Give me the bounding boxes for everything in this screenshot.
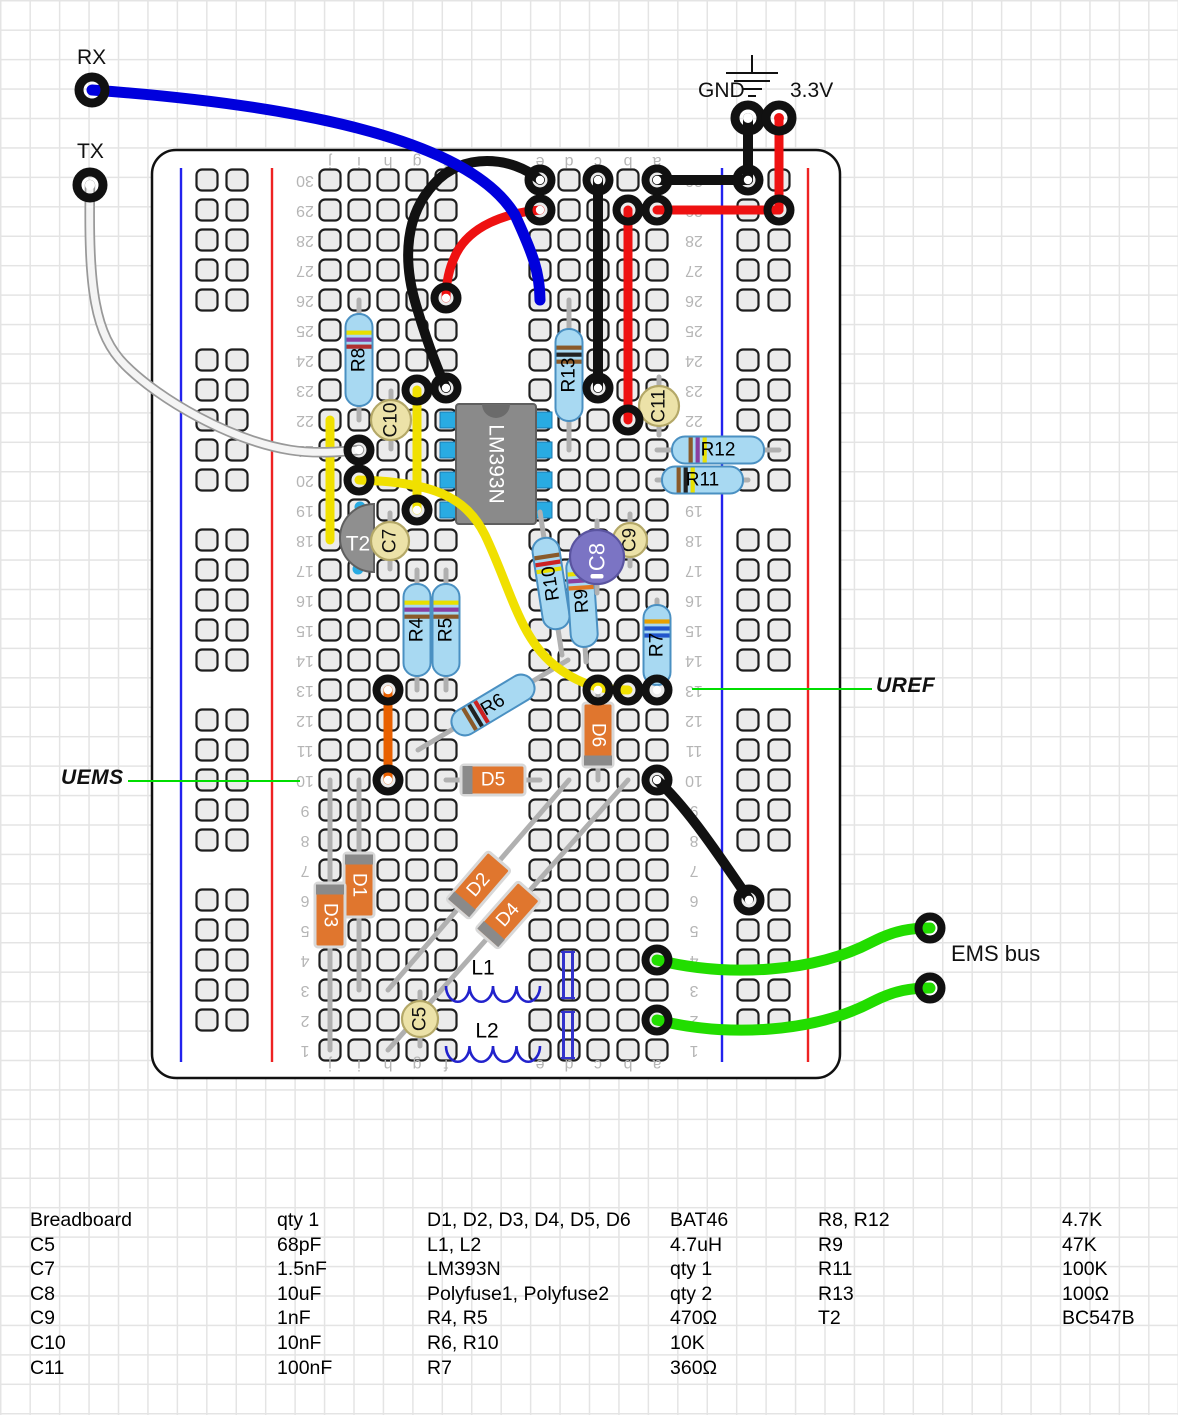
breadboard-hole (407, 350, 428, 371)
pad-center (653, 776, 661, 784)
breadboard-hole (769, 710, 790, 731)
breadboard-hole (588, 410, 609, 431)
breadboard-hole (378, 170, 399, 191)
breadboard-hole (647, 530, 668, 551)
breadboard-hole (647, 830, 668, 851)
breadboard-hole (647, 890, 668, 911)
breadboard-hole (618, 950, 639, 971)
breadboard-hole (738, 560, 759, 581)
breadboard-hole (197, 650, 218, 671)
breadboard-hole (738, 380, 759, 401)
component-label: C8 (585, 543, 610, 571)
board-printed-label: 1 (300, 1042, 309, 1059)
breadboard-hole (320, 560, 341, 581)
connection-pad[interactable] (77, 172, 103, 198)
breadboard-hole (436, 740, 457, 761)
breadboard-hole (559, 920, 580, 941)
legend-entry: qty 1 (277, 1208, 332, 1233)
resistor-band (557, 346, 582, 350)
breadboard-hole (227, 740, 248, 761)
breadboard-hole (559, 710, 580, 731)
breadboard-hole (530, 350, 551, 371)
breadboard-hole (436, 950, 457, 971)
breadboard-hole (769, 560, 790, 581)
connection-pad[interactable] (348, 469, 371, 492)
breadboard-hole (618, 1010, 639, 1031)
connection-pad[interactable] (617, 199, 640, 222)
resistor-band (434, 608, 459, 612)
breadboard-hole (227, 560, 248, 581)
legend-entry: C8 (30, 1282, 132, 1307)
board-printed-label: 6 (689, 892, 698, 909)
legend-entry: qty 1 (670, 1257, 728, 1282)
board-printed-label: 18 (685, 532, 703, 549)
board-printed-label: 13 (685, 682, 703, 699)
board-printed-label: 14 (685, 652, 703, 669)
breadboard-hole (618, 860, 639, 881)
board-printed-label: 27 (685, 262, 703, 279)
breadboard-hole (197, 710, 218, 731)
breadboard-hole (227, 380, 248, 401)
breadboard-hole (197, 740, 218, 761)
breadboard-hole (320, 620, 341, 641)
component-label: R9 (571, 588, 594, 614)
component-r8[interactable]: R8 (346, 300, 373, 420)
board-printed-label: 15 (685, 622, 703, 639)
legend-entry: C9 (30, 1306, 132, 1331)
breadboard-hole (197, 470, 218, 491)
breadboard-hole (769, 620, 790, 641)
connection-pad[interactable] (587, 169, 610, 192)
breadboard-hole (407, 920, 428, 941)
connection-pad[interactable] (646, 769, 669, 792)
connection-pad[interactable] (348, 439, 371, 462)
breadboard-hole (530, 920, 551, 941)
component-label: R13 (559, 358, 580, 393)
connection-pad[interactable] (919, 917, 942, 940)
connection-pad[interactable] (529, 199, 552, 222)
board-printed-label: 24 (296, 352, 314, 369)
breadboard-hole (227, 200, 248, 221)
legend-entry: C11 (30, 1356, 132, 1381)
legend-entry: T2 (818, 1306, 890, 1331)
breadboard-hole (618, 620, 639, 641)
legend-entry: 1.5nF (277, 1257, 332, 1282)
board-printed-label: d (565, 153, 574, 170)
pad-center (743, 113, 753, 123)
breadboard-hole (618, 590, 639, 611)
breadboard-hole (320, 590, 341, 611)
resistor-band (347, 331, 372, 335)
tx-label: TX (77, 140, 104, 164)
connection-pad[interactable] (587, 377, 610, 400)
breadboard-hole (738, 710, 759, 731)
pad-center (355, 446, 363, 454)
breadboard-hole (227, 620, 248, 641)
component-label: L1 (471, 957, 494, 980)
breadboard-hole (618, 440, 639, 461)
component-d5[interactable]: D5 (446, 765, 540, 795)
breadboard-hole (197, 200, 218, 221)
legend-column-3: D1, D2, D3, D4, D5, D6L1, L2LM393NPolyfu… (427, 1208, 631, 1380)
breadboard-hole (530, 320, 551, 341)
connection-pad[interactable] (646, 679, 669, 702)
breadboard-hole (588, 980, 609, 1001)
breadboard-hole (559, 470, 580, 491)
breadboard-hole (436, 200, 457, 221)
breadboard-hole (378, 830, 399, 851)
board-printed-label: 22 (685, 412, 703, 429)
breadboard-hole (227, 650, 248, 671)
board-printed-label: 22 (296, 412, 314, 429)
breadboard-hole (738, 770, 759, 791)
breadboard-hole (407, 980, 428, 1001)
connection-pad[interactable] (587, 679, 610, 702)
breadboard-hole (378, 800, 399, 821)
breadboard-hole (436, 230, 457, 251)
legend-entry: C5 (30, 1233, 132, 1258)
legend-entry: 360Ω (670, 1356, 728, 1381)
legend-entry: Polyfuse1, Polyfuse2 (427, 1282, 631, 1307)
board-printed-label: g (413, 153, 422, 170)
component-r12[interactable]: R12 (657, 437, 779, 464)
resistor-band (645, 619, 670, 623)
component-label: R5 (436, 618, 457, 642)
breadboard-hole (436, 320, 457, 341)
breadboard-hole (227, 260, 248, 281)
breadboard-hole (738, 740, 759, 761)
legend-entry: 10nF (277, 1331, 332, 1356)
breadboard-hole (320, 710, 341, 731)
legend-entry: C10 (30, 1331, 132, 1356)
breadboard-hole (320, 380, 341, 401)
breadboard-hole (588, 860, 609, 881)
pad-center (653, 956, 661, 964)
breadboard-hole (349, 170, 370, 191)
breadboard-hole (378, 620, 399, 641)
connection-pad[interactable] (79, 77, 105, 103)
breadboard-hole (738, 230, 759, 251)
breadboard-hole (588, 1010, 609, 1031)
component-label: R8 (349, 348, 370, 372)
pad-center (624, 686, 632, 694)
breadboard-hole (559, 230, 580, 251)
breadboard-hole (227, 920, 248, 941)
board-printed-label: 23 (685, 382, 703, 399)
board-printed-label: 19 (685, 502, 703, 519)
breadboard-hole (647, 710, 668, 731)
component-label: D3 (320, 903, 341, 927)
breadboard-hole (769, 650, 790, 671)
breadboard-hole (227, 290, 248, 311)
connection-pad[interactable] (406, 499, 429, 522)
connection-pad[interactable] (646, 169, 669, 192)
diode-cathode-band (463, 766, 473, 794)
board-printed-label: 3 (689, 982, 698, 999)
breadboard-hole (647, 740, 668, 761)
connection-pad[interactable] (646, 1009, 669, 1032)
diode-cathode-band (345, 855, 373, 865)
breadboard-hole (618, 920, 639, 941)
breadboard-hole (769, 530, 790, 551)
breadboard-hole (378, 590, 399, 611)
board-printed-label: 12 (296, 712, 314, 729)
board-printed-label: 18 (296, 532, 314, 549)
legend-entry: 68pF (277, 1233, 332, 1258)
connection-pad[interactable] (919, 977, 942, 1000)
legend-entry: R8, R12 (818, 1208, 890, 1233)
board-printed-label: c (594, 1056, 602, 1073)
legend-column-5: R8, R12R9R11R13T2 (818, 1208, 890, 1331)
breadboard-hole (588, 470, 609, 491)
pad-center (745, 896, 753, 904)
component-r11[interactable]: R11 (657, 467, 748, 494)
connection-pad[interactable] (435, 287, 458, 310)
connection-pad[interactable] (377, 679, 400, 702)
board-printed-label: 9 (300, 802, 309, 819)
pad-center (775, 206, 783, 214)
breadboard-hole (320, 740, 341, 761)
breadboard-hole (227, 800, 248, 821)
legend-entry: R6, R10 (427, 1331, 631, 1356)
breadboard-hole (769, 350, 790, 371)
legend-column-2: qty 168pF1.5nF10uF1nF10nF100nF (277, 1208, 332, 1380)
legend-entry: 10uF (277, 1282, 332, 1307)
breadboard-hole (197, 920, 218, 941)
legend-entry: 100K (1062, 1257, 1135, 1282)
breadboard-hole (738, 920, 759, 941)
breadboard-hole (227, 590, 248, 611)
breadboard-hole (349, 620, 370, 641)
diode-cathode-band (584, 756, 612, 766)
board-printed-label: 26 (685, 292, 703, 309)
legend-entry: 4.7K (1062, 1208, 1135, 1233)
breadboard-hole (588, 440, 609, 461)
rx-label: RX (77, 46, 106, 70)
pad-center (653, 176, 661, 184)
resistor-band (557, 353, 582, 357)
board-printed-label: 16 (685, 592, 703, 609)
breadboard-hole (349, 680, 370, 701)
breadboard-hole (349, 260, 370, 281)
breadboard-hole (197, 830, 218, 851)
connection-pad[interactable] (737, 169, 760, 192)
breadboard-hole (769, 470, 790, 491)
connection-pad[interactable] (766, 105, 792, 131)
breadboard-hole (197, 290, 218, 311)
connection-pad[interactable] (768, 199, 791, 222)
board-printed-label: i (357, 1056, 361, 1073)
breadboard-hole (618, 470, 639, 491)
breadboard-hole (197, 350, 218, 371)
breadboard-hole (647, 350, 668, 371)
breadboard-hole (530, 740, 551, 761)
component-label: LM393N (485, 424, 508, 503)
breadboard-hole (320, 230, 341, 251)
connection-pad[interactable] (617, 679, 640, 702)
breadboard-hole (559, 200, 580, 221)
breadboard-hole (349, 650, 370, 671)
board-printed-label: 27 (296, 262, 314, 279)
connection-pad[interactable] (529, 169, 552, 192)
board-printed-label: 7 (300, 862, 309, 879)
breadboard-hole (320, 350, 341, 371)
breadboard-hole (647, 980, 668, 1001)
breadboard-hole (378, 920, 399, 941)
board-printed-label: 5 (689, 922, 698, 939)
legend-entry: L1, L2 (427, 1233, 631, 1258)
legend-entry: 4.7uH (670, 1233, 728, 1258)
breadboard-hole (197, 230, 218, 251)
breadboard-hole (378, 380, 399, 401)
breadboard-hole (647, 920, 668, 941)
board-printed-label: 11 (297, 742, 314, 759)
pad-center (594, 686, 602, 694)
pad-center (594, 176, 602, 184)
breadboard-hole (227, 350, 248, 371)
breadboard-hole (320, 260, 341, 281)
breadboard-page: { "ports": { "rx": {"label":"RX"}, "tx":… (0, 0, 1178, 1415)
breadboard-hole (227, 950, 248, 971)
board-printed-label: 26 (296, 292, 314, 309)
resistor-band (645, 626, 670, 630)
pad-center (653, 686, 661, 694)
breadboard-hole (769, 590, 790, 611)
legend-entry: 100nF (277, 1356, 332, 1381)
breadboard-hole (530, 380, 551, 401)
connection-pad[interactable] (406, 379, 429, 402)
resistor-band (347, 338, 372, 342)
breadboard-hole (436, 530, 457, 551)
board-printed-label: j (328, 153, 333, 170)
gnd-label: GND (698, 79, 745, 103)
breadboard-hole (647, 560, 668, 581)
pad-center (536, 176, 544, 184)
ems-bus-label: EMS bus (951, 941, 1040, 967)
board-printed-label: 28 (296, 232, 314, 249)
breadboard-hole (738, 980, 759, 1001)
pad-center (744, 176, 752, 184)
breadboard-hole (320, 680, 341, 701)
breadboard-hole (647, 860, 668, 881)
breadboard-hole (647, 230, 668, 251)
connection-pad[interactable] (735, 105, 761, 131)
component-label: D1 (349, 873, 370, 897)
breadboard-hole (530, 1010, 551, 1031)
connection-pad[interactable] (435, 377, 458, 400)
board-printed-label: 16 (296, 592, 314, 609)
breadboard-hole (738, 800, 759, 821)
legend-entry: qty 2 (670, 1282, 728, 1307)
connection-pad[interactable] (617, 409, 640, 432)
breadboard-hole (769, 260, 790, 281)
breadboard-hole (618, 980, 639, 1001)
breadboard-hole (769, 230, 790, 251)
pad-center (774, 113, 784, 123)
breadboard-hole (197, 560, 218, 581)
breadboard-hole (320, 170, 341, 191)
breadboard-hole (436, 830, 457, 851)
breadboard-hole (769, 890, 790, 911)
breadboard-hole (197, 980, 218, 1001)
breadboard-hole (559, 860, 580, 881)
board-printed-label: g (413, 1056, 422, 1073)
breadboard-diagram: 1122334455667788991010111112121313141415… (0, 0, 1178, 1415)
pad-center (85, 180, 95, 190)
legend-entry: R11 (818, 1257, 890, 1282)
legend-entry: 100Ω (1062, 1282, 1135, 1307)
component-label: R7 (647, 633, 668, 657)
legend-column-1: BreadboardC5C7C8C9C10C11 (30, 1208, 132, 1380)
board-printed-label: 4 (300, 952, 309, 969)
board-printed-label: b (623, 1056, 632, 1073)
legend-entry: C7 (30, 1257, 132, 1282)
breadboard-hole (530, 950, 551, 971)
component-label: C10 (381, 403, 402, 438)
breadboard-hole (349, 200, 370, 221)
breadboard-hole (769, 290, 790, 311)
breadboard-hole (530, 830, 551, 851)
connection-pad[interactable] (646, 199, 669, 222)
pad-center (355, 476, 363, 484)
legend-column-6: 4.7K47K100K100ΩBC547B (1062, 1208, 1135, 1331)
component-r5[interactable]: R5 (433, 570, 460, 690)
board-printed-label: h (384, 1056, 393, 1073)
breadboard-hole (227, 170, 248, 191)
breadboard-hole (618, 650, 639, 671)
breadboard-hole (320, 320, 341, 341)
connection-pad[interactable] (377, 769, 400, 792)
breadboard-hole (559, 800, 580, 821)
component-label: T2 (346, 533, 371, 556)
breadboard-hole (588, 950, 609, 971)
component-label: D6 (588, 723, 609, 747)
board-printed-label: 15 (296, 622, 314, 639)
component-label: R4 (407, 617, 428, 642)
resistor-band (677, 468, 681, 493)
legend-entry: 470Ω (670, 1306, 728, 1331)
connection-pad[interactable] (738, 889, 761, 912)
breadboard-hole (407, 800, 428, 821)
breadboard-hole (378, 860, 399, 881)
legend-column-4: BAT464.7uHqty 1qty 2470Ω10K360Ω (670, 1208, 728, 1380)
legend-entry: D1, D2, D3, D4, D5, D6 (427, 1208, 631, 1233)
breadboard-hole (769, 770, 790, 791)
board-printed-label: h (384, 153, 393, 170)
breadboard-hole (738, 650, 759, 671)
legend-entry: 1nF (277, 1306, 332, 1331)
board-printed-label: 8 (300, 832, 309, 849)
board-printed-label: 28 (685, 232, 703, 249)
v33-label: 3.3V (790, 79, 833, 103)
board-printed-label: b (623, 153, 632, 170)
component-r4[interactable]: R4 (404, 570, 431, 690)
breadboard-hole (559, 170, 580, 191)
breadboard-hole (197, 530, 218, 551)
breadboard-hole (436, 860, 457, 881)
breadboard-hole (378, 290, 399, 311)
breadboard-hole (618, 800, 639, 821)
component-label: C11 (649, 389, 670, 422)
pad-center (624, 206, 632, 214)
component-label: C5 (410, 1007, 431, 1031)
breadboard-hole (227, 1010, 248, 1031)
legend-entry: LM393N (427, 1257, 631, 1282)
breadboard-hole (349, 590, 370, 611)
breadboard-hole (197, 890, 218, 911)
pad-center (442, 294, 450, 302)
connection-pad[interactable] (646, 949, 669, 972)
